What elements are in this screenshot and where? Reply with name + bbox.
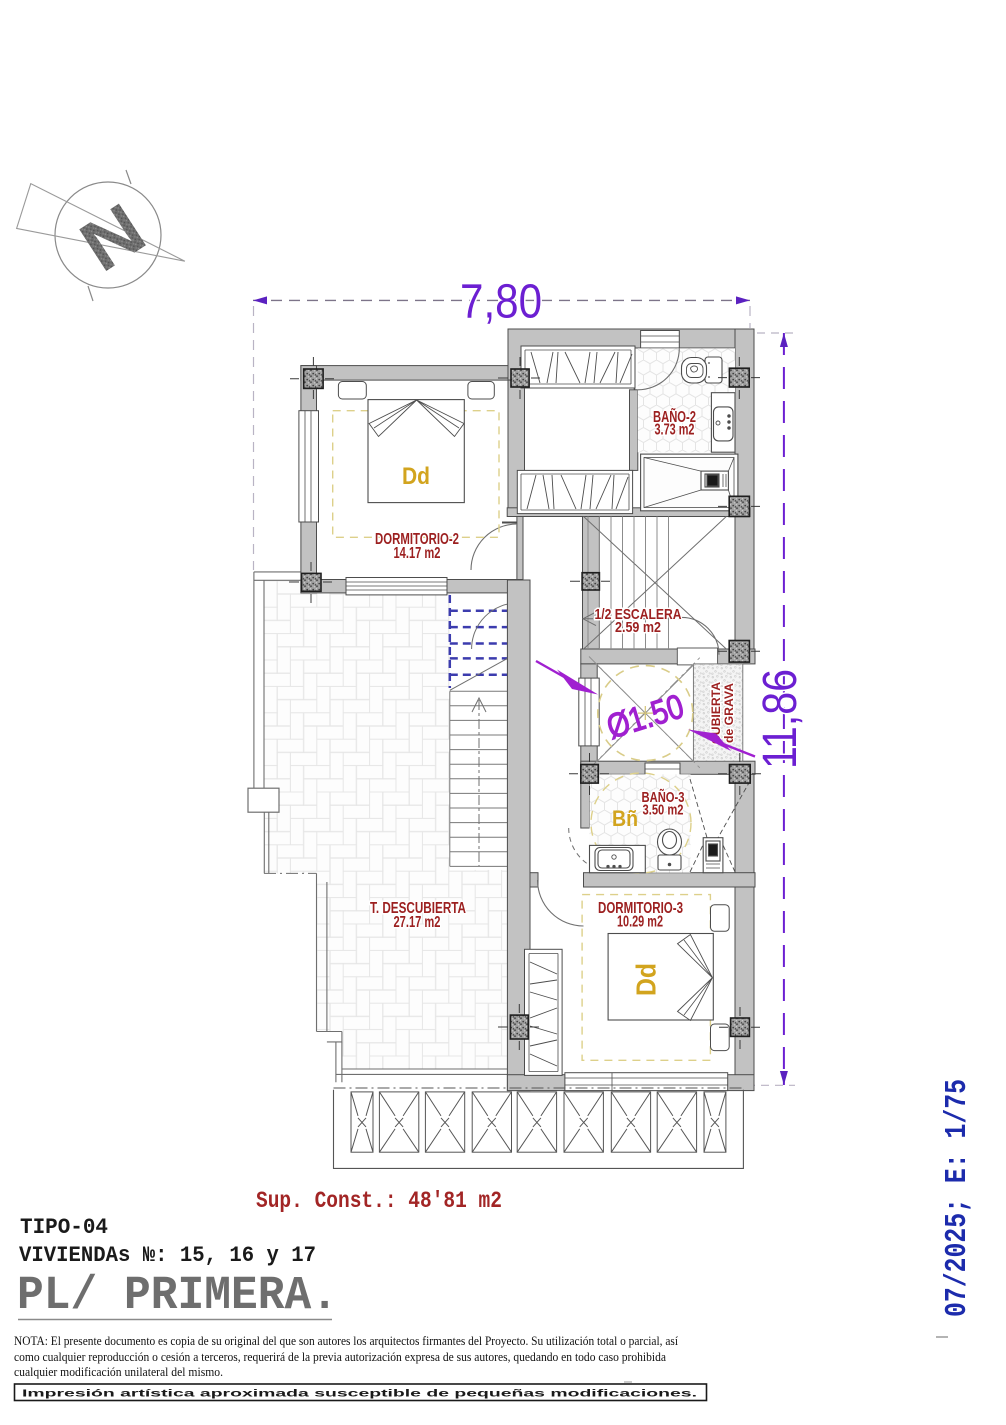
svg-text:NOTA: El presente documento es: NOTA: El presente documento es copia de … [14,1334,678,1348]
svg-text:Dd: Dd [631,963,662,996]
svg-text:3.73 m2: 3.73 m2 [655,422,695,439]
svg-text:3.50 m2: 3.50 m2 [643,803,684,819]
svg-text:Bñ: Bñ [612,806,638,831]
svg-text:07/2025; E: 1/75: 07/2025; E: 1/75 [940,1079,975,1317]
svg-text:2.59 m2: 2.59 m2 [615,619,661,636]
svg-text:10.29 m2: 10.29 m2 [617,914,663,931]
svg-text:cualquier modificación unilate: cualquier modificación unilateral del mi… [14,1365,223,1379]
svg-text:como cualquier reproducción o: como cualquier reproducción o cesión a t… [14,1350,666,1364]
svg-text:14.17 m2: 14.17 m2 [394,545,441,562]
svg-text:27.17 m2: 27.17 m2 [394,914,441,931]
svg-text:VIVIENDAs №: 15, 16 y 17: VIVIENDAs №: 15, 16 y 17 [19,1243,316,1268]
svg-text:11,86: 11,86 [752,669,807,769]
svg-text:Dd: Dd [402,463,430,490]
svg-text:Sup. Const.: 48'81 m2: Sup. Const.: 48'81 m2 [256,1188,502,1214]
svg-text:7,80: 7,80 [460,273,542,328]
svg-text:PL/ PRIMERA.: PL/ PRIMERA. [17,1270,338,1323]
svg-text:de GRAVA: de GRAVA [722,683,736,743]
svg-text:TIPO-04: TIPO-04 [20,1215,108,1240]
svg-text:Impresión artística aproxima: Impresión artística aproximada susceptib… [22,1388,697,1400]
